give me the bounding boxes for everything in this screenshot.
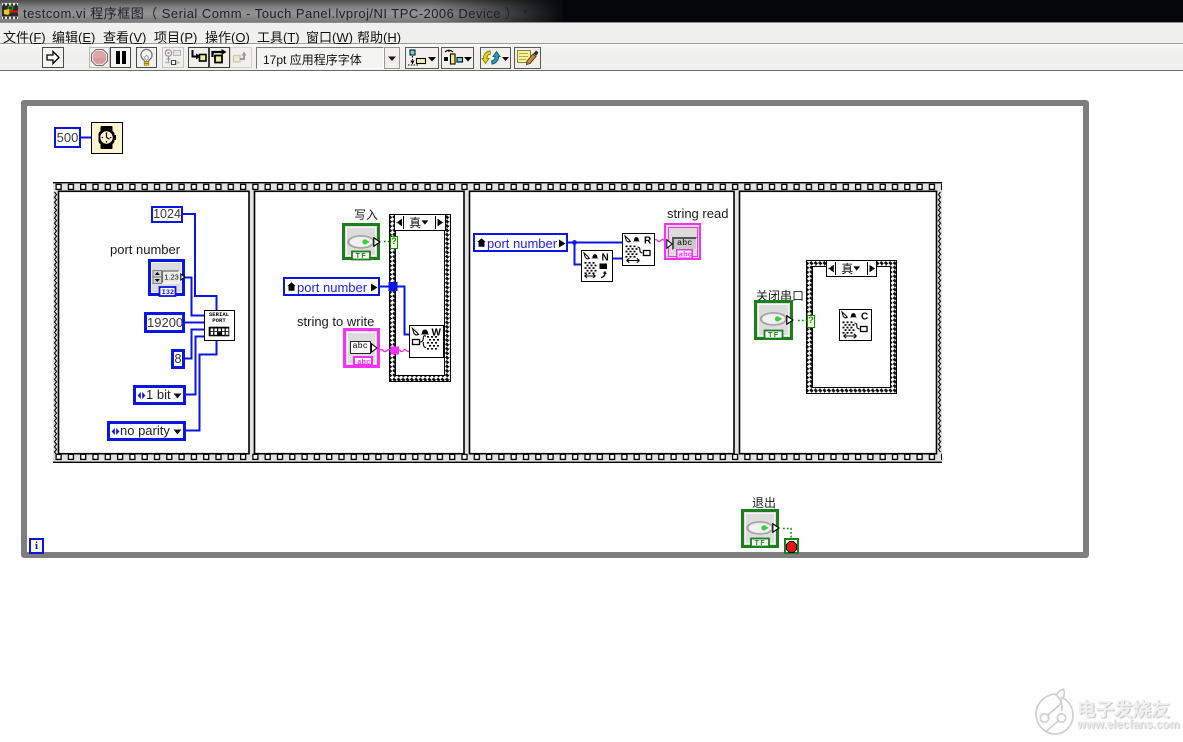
svg-text:abc: abc — [679, 252, 693, 259]
svg-text:R: R — [644, 236, 652, 247]
svg-text:C: C — [861, 312, 868, 323]
svg-text:I32: I32 — [162, 289, 174, 297]
svg-text:TF: TF — [755, 540, 767, 547]
svg-text:N: N — [602, 253, 609, 264]
svg-text:abc: abc — [357, 359, 371, 366]
svg-text:TF: TF — [768, 332, 780, 339]
svg-text:TF: TF — [356, 253, 368, 260]
svg-text:1.23: 1.23 — [164, 273, 179, 282]
